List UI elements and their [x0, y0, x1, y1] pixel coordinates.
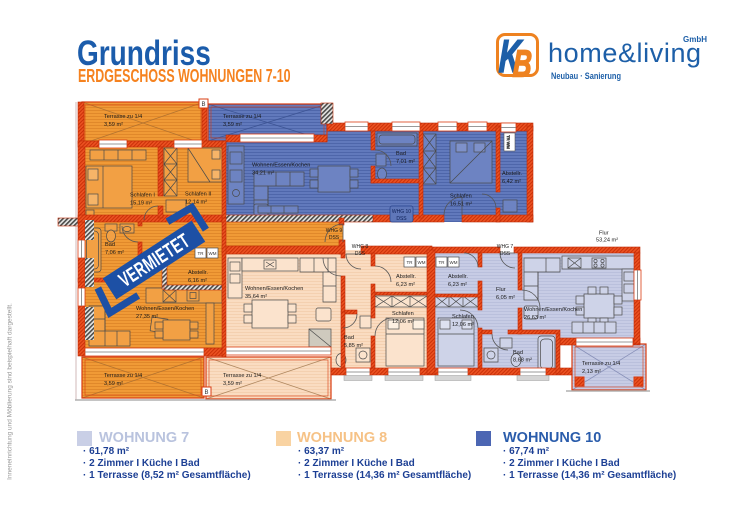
svg-text:TR WM: TR WM — [506, 135, 511, 149]
svg-text:Wohnen/Essen/Kochen: Wohnen/Essen/Kochen — [524, 307, 582, 313]
svg-text:Flur: Flur — [496, 287, 506, 293]
svg-text:7,01 m²: 7,01 m² — [396, 159, 415, 165]
svg-text:6,23 m²: 6,23 m² — [448, 282, 467, 288]
svg-text:Schlafen II: Schlafen II — [185, 192, 212, 198]
svg-text:Terrasse zu 1/4: Terrasse zu 1/4 — [104, 373, 142, 379]
svg-text:Bad: Bad — [513, 350, 523, 356]
svg-text:TR: TR — [198, 251, 205, 256]
svg-text:Abstellr.: Abstellr. — [502, 171, 522, 177]
svg-text:Wohnen/Essen/Kochen: Wohnen/Essen/Kochen — [252, 163, 310, 169]
svg-text:WHG 8: WHG 8 — [352, 244, 369, 250]
svg-text:12,14 m²: 12,14 m² — [185, 200, 207, 206]
svg-text:15,19 m²: 15,19 m² — [130, 201, 152, 207]
svg-text:Terrasse zu 1/4: Terrasse zu 1/4 — [223, 373, 261, 379]
svg-text:6,23 m²: 6,23 m² — [396, 282, 415, 288]
svg-text:Abstellr.: Abstellr. — [188, 270, 208, 276]
svg-text:7,06 m²: 7,06 m² — [105, 250, 124, 256]
svg-text:DSS: DSS — [500, 251, 511, 257]
svg-text:34,21 m²: 34,21 m² — [252, 171, 274, 177]
svg-text:Schlafen I: Schlafen I — [130, 193, 155, 199]
svg-text:Wohnen/Essen/Kochen: Wohnen/Essen/Kochen — [136, 306, 194, 312]
svg-text:B: B — [204, 390, 208, 396]
svg-text:Bad: Bad — [396, 151, 406, 157]
svg-text:27,35 m²: 27,35 m² — [136, 314, 158, 320]
svg-text:WM: WM — [450, 260, 458, 265]
svg-text:TR: TR — [407, 260, 414, 265]
svg-text:WHG 7: WHG 7 — [497, 244, 514, 250]
svg-text:TR: TR — [439, 260, 446, 265]
svg-text:Wohnen/Essen/Kochen: Wohnen/Essen/Kochen — [245, 286, 303, 292]
svg-text:6,42 m²: 6,42 m² — [502, 179, 521, 185]
svg-text:Bad: Bad — [344, 335, 354, 341]
svg-text:Schlafen: Schlafen — [392, 311, 414, 317]
svg-text:Bad: Bad — [105, 242, 115, 248]
svg-text:2,13 m²: 2,13 m² — [582, 369, 601, 375]
svg-text:Schlafen: Schlafen — [452, 314, 474, 320]
svg-text:26,63 m²: 26,63 m² — [524, 315, 546, 321]
svg-text:Terrasse zu 1/4: Terrasse zu 1/4 — [223, 114, 261, 120]
svg-text:6,16 m²: 6,16 m² — [188, 278, 207, 284]
svg-text:3,59 m²: 3,59 m² — [104, 122, 123, 128]
svg-text:53,24 m²: 53,24 m² — [596, 238, 618, 244]
svg-text:12,06 m²: 12,06 m² — [452, 322, 474, 328]
svg-text:12,06 m²: 12,06 m² — [392, 319, 414, 325]
svg-text:35,64 m²: 35,64 m² — [245, 294, 267, 300]
svg-text:WHG 10: WHG 10 — [392, 209, 411, 215]
svg-text:WM: WM — [209, 251, 217, 256]
svg-text:Abstellr.: Abstellr. — [396, 274, 416, 280]
svg-text:Terrasse zu 1/4: Terrasse zu 1/4 — [582, 361, 620, 367]
svg-text:6,05 m²: 6,05 m² — [496, 295, 515, 301]
svg-text:DSS: DSS — [355, 251, 366, 257]
svg-text:8,68 m²: 8,68 m² — [513, 358, 532, 364]
svg-text:B: B — [201, 102, 205, 108]
svg-text:Schlafen: Schlafen — [450, 194, 472, 200]
svg-text:5,85 m²: 5,85 m² — [344, 343, 363, 349]
svg-text:3,59 m²: 3,59 m² — [223, 122, 242, 128]
svg-text:Abstellr.: Abstellr. — [448, 274, 468, 280]
svg-text:Terrasse zu 1/4: Terrasse zu 1/4 — [104, 114, 142, 120]
svg-text:3,59 m²: 3,59 m² — [223, 381, 242, 387]
svg-text:WHG 9: WHG 9 — [326, 228, 343, 234]
svg-text:WM: WM — [418, 260, 426, 265]
svg-text:Flur: Flur — [599, 231, 609, 237]
svg-text:3,59 m²: 3,59 m² — [104, 381, 123, 387]
svg-text:16,51 m²: 16,51 m² — [450, 202, 472, 208]
svg-text:DSS: DSS — [329, 235, 340, 241]
svg-text:DSS: DSS — [396, 216, 407, 222]
